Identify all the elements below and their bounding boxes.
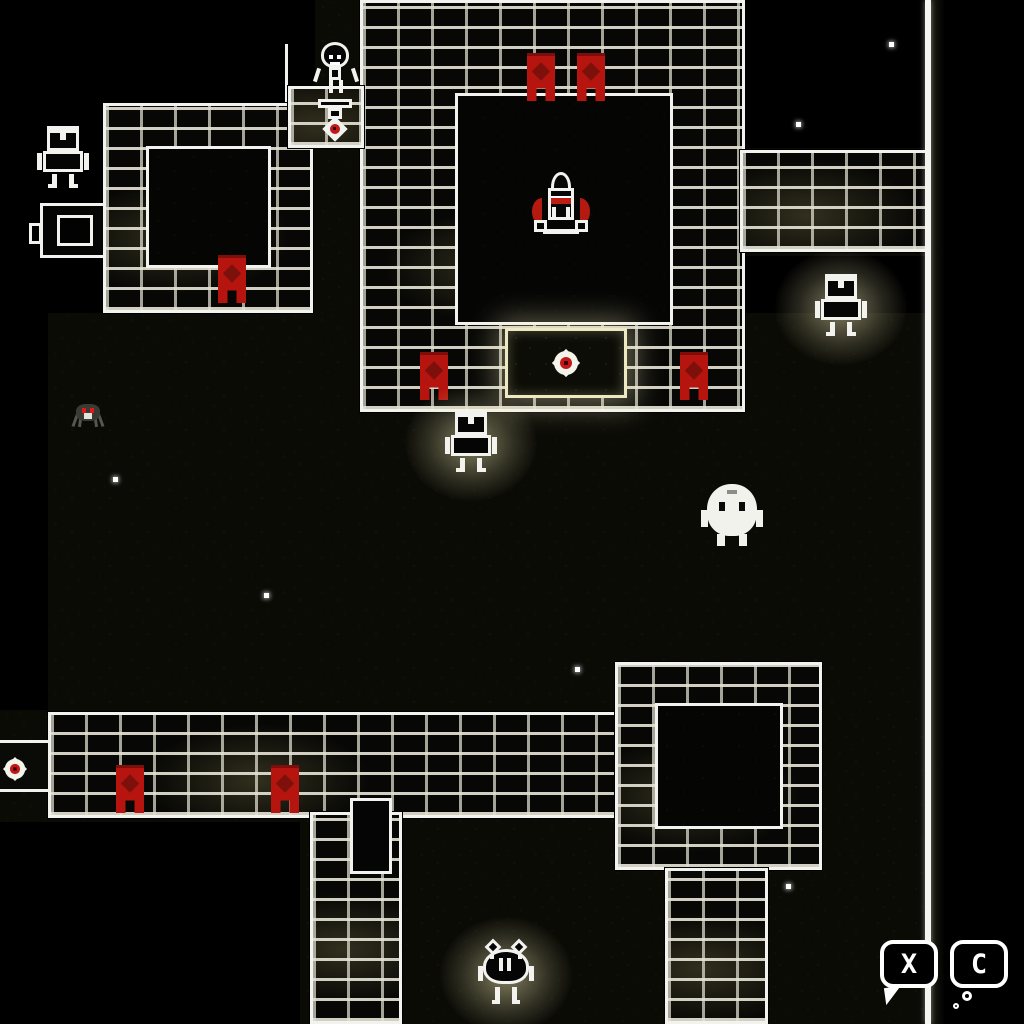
statue-eye xyxy=(337,55,341,59)
thought-bubble-dot xyxy=(953,1003,959,1009)
robot-arm xyxy=(492,437,497,454)
robot-eye-bridge xyxy=(838,277,844,288)
robot-body xyxy=(43,151,83,172)
statue-leg xyxy=(339,80,343,93)
pedestal-bar xyxy=(318,99,352,108)
banner-emblem xyxy=(223,264,241,282)
statue-torso xyxy=(329,67,341,80)
spider-leg xyxy=(495,987,500,1004)
robot-head xyxy=(47,126,79,151)
banner-emblem xyxy=(582,62,600,80)
rocket-stripe xyxy=(552,207,556,218)
game-scene: X C xyxy=(0,0,1024,1024)
bottom-right-room-floor xyxy=(655,703,783,829)
rocket-body xyxy=(548,188,574,220)
rocket-ship[interactable] xyxy=(533,172,589,236)
thought-bubble-dot xyxy=(962,991,972,1001)
spider-fangs xyxy=(84,413,92,419)
robot-arm xyxy=(862,301,867,318)
blob-arm xyxy=(756,510,763,527)
rocket-stripe xyxy=(566,207,570,218)
glowing-robot-creature xyxy=(448,410,494,474)
right-vertical-wall xyxy=(665,868,768,1024)
spider-fang xyxy=(507,958,511,971)
banner-emblem xyxy=(276,774,294,792)
speech-bubble-tail xyxy=(884,986,903,1005)
red-orb-center xyxy=(333,127,336,130)
rocket-red-band xyxy=(551,196,571,204)
glowing-robot-creature xyxy=(818,274,864,338)
statue-arm xyxy=(313,68,321,83)
small-spider-creature xyxy=(70,396,106,432)
rocket-fin xyxy=(580,198,590,220)
robot-arm xyxy=(37,153,42,170)
banner-emblem xyxy=(685,361,703,379)
speech-bubble-icon: X xyxy=(880,940,938,988)
robot-leg xyxy=(477,458,482,472)
spider-leg xyxy=(512,987,517,1004)
corridor-seal-emblem xyxy=(4,758,26,780)
banner-emblem xyxy=(532,62,550,80)
shrine-statue xyxy=(312,42,360,146)
blob-shading xyxy=(727,490,737,494)
thought-bubble-icon: C xyxy=(950,940,1008,988)
robot-arm xyxy=(84,153,89,170)
glowing-spider-creature xyxy=(478,940,534,1008)
south-passage-slot xyxy=(350,798,392,874)
blob-leg xyxy=(717,534,725,546)
spider-eye-mark xyxy=(490,954,494,959)
spider-eye-mark xyxy=(518,954,522,959)
blob-leg xyxy=(739,534,747,546)
west-corridor-exit[interactable] xyxy=(0,740,48,792)
robot-head xyxy=(455,410,487,435)
gate-seal-emblem xyxy=(553,350,579,376)
statue-eye xyxy=(329,55,333,59)
robot-arm xyxy=(445,437,450,454)
c-action-button[interactable]: C xyxy=(950,940,1016,1020)
sealed-gate-door[interactable] xyxy=(505,328,627,398)
star xyxy=(796,122,801,127)
seal-center-dot xyxy=(564,361,568,365)
statue-head xyxy=(321,42,349,68)
white-blob-creature xyxy=(703,480,761,546)
blob-eye xyxy=(719,502,725,511)
robot-creature xyxy=(40,126,86,190)
statue-leg xyxy=(329,80,333,93)
rocket-base-platform xyxy=(543,229,579,234)
robot-leg xyxy=(52,174,57,188)
robot-leg xyxy=(69,174,74,188)
west-door-panel xyxy=(57,215,93,246)
statue-mouth xyxy=(330,62,340,65)
star xyxy=(113,477,118,482)
robot-body xyxy=(451,435,491,456)
banner-emblem xyxy=(121,774,139,792)
robot-eye-bridge xyxy=(468,413,474,424)
robot-eye-bridge xyxy=(60,129,66,140)
spider-arm xyxy=(478,966,483,981)
top-right-corridor-wall xyxy=(740,150,928,252)
star xyxy=(575,667,580,672)
x-action-button[interactable]: X xyxy=(880,940,946,1020)
top-left-room-floor xyxy=(146,146,271,268)
robot-body xyxy=(821,299,861,320)
banner-emblem xyxy=(425,361,443,379)
robot-head xyxy=(825,274,857,299)
statue-arm xyxy=(351,68,359,83)
west-door[interactable] xyxy=(40,203,106,258)
blob-eye xyxy=(739,502,745,511)
robot-arm xyxy=(815,301,820,318)
map-edge-line xyxy=(925,0,931,1024)
rocket-fin xyxy=(532,198,542,220)
star xyxy=(786,884,791,889)
star xyxy=(889,42,894,47)
star xyxy=(264,593,269,598)
map-edge-shade xyxy=(931,0,945,1024)
robot-leg xyxy=(460,458,465,472)
spider-arm xyxy=(529,966,534,981)
blob-body xyxy=(707,484,757,536)
robot-leg xyxy=(847,322,852,336)
spider-fang xyxy=(499,958,503,971)
seal-center-dot xyxy=(13,767,16,770)
west-door-knob xyxy=(29,223,42,244)
robot-leg xyxy=(830,322,835,336)
